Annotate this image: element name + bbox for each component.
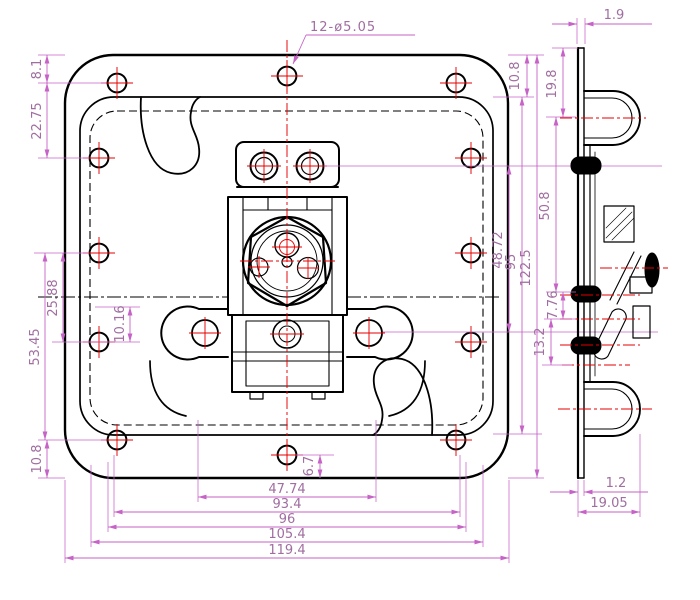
side-mechanism bbox=[594, 206, 659, 359]
side-view bbox=[558, 48, 668, 478]
dish-ear-top-left bbox=[141, 97, 200, 174]
latch-drawing-svg: 12-ø5.05 8.1 22.75 25.88 53.45 10.16 10.… bbox=[0, 0, 700, 600]
side-rivet bbox=[571, 157, 601, 174]
dim-22-75: 22.75 bbox=[30, 102, 45, 139]
dim-93-4: 93.4 bbox=[273, 497, 302, 512]
dim-19-8: 19.8 bbox=[545, 70, 560, 99]
dim-1-9: 1.9 bbox=[604, 8, 625, 23]
dim-105-4: 105.4 bbox=[268, 527, 305, 542]
mounting-holes bbox=[83, 60, 487, 471]
dim-13-2: 13.2 bbox=[533, 328, 548, 357]
dim-7-76: 7.76 bbox=[546, 291, 561, 320]
dish-curl-right bbox=[389, 361, 425, 416]
dim-19-05: 19.05 bbox=[590, 496, 627, 511]
dish-curl-left bbox=[150, 361, 186, 416]
hole-callout-label: 12-ø5.05 bbox=[310, 20, 376, 35]
dim-1-2: 1.2 bbox=[606, 476, 627, 491]
technical-drawing-canvas: 12-ø5.05 8.1 22.75 25.88 53.45 10.16 10.… bbox=[0, 0, 700, 600]
dim-96: 96 bbox=[279, 512, 296, 527]
dim-47-74: 47.74 bbox=[268, 482, 305, 497]
front-view bbox=[38, 40, 662, 478]
side-rivet bbox=[571, 286, 601, 302]
dim-10-16: 10.16 bbox=[113, 305, 128, 342]
dish-ear-bottom-right bbox=[373, 358, 432, 435]
dish-edge-outline bbox=[80, 97, 493, 435]
dim-122-5: 122.5 bbox=[519, 249, 534, 286]
dim-95: 95 bbox=[504, 254, 519, 271]
latch-housing bbox=[232, 315, 343, 392]
dim-6-7: 6.7 bbox=[302, 456, 317, 477]
dim-53-45: 53.45 bbox=[28, 328, 43, 365]
dim-50-8: 50.8 bbox=[538, 192, 553, 221]
dim-25-88: 25.88 bbox=[46, 279, 61, 316]
dim-10-8-top: 10.8 bbox=[508, 62, 523, 91]
dim-119-4: 119.4 bbox=[268, 543, 305, 558]
dim-8-1: 8.1 bbox=[30, 59, 45, 80]
dim-10-8-bottom: 10.8 bbox=[30, 445, 45, 474]
side-rivet bbox=[571, 337, 601, 354]
